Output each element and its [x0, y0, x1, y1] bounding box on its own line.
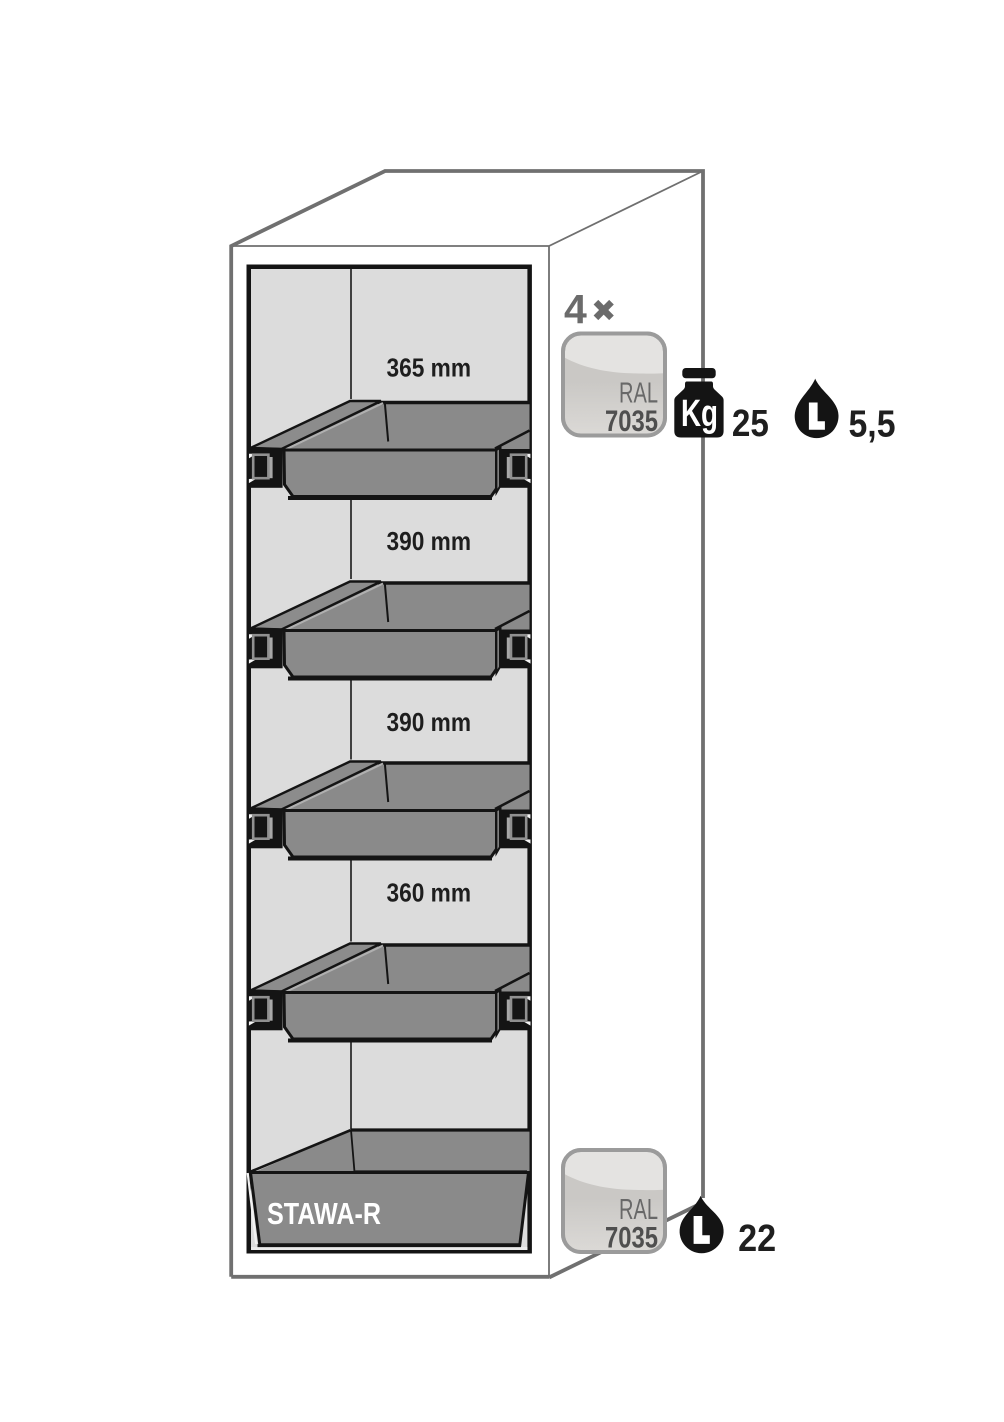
svg-text:365 mm: 365 mm: [387, 353, 472, 383]
svg-text:25: 25: [732, 403, 769, 445]
svg-text:5,5: 5,5: [849, 404, 896, 446]
svg-text:390 mm: 390 mm: [387, 526, 472, 556]
svg-text:Kg: Kg: [681, 393, 718, 435]
svg-text:22: 22: [738, 1218, 776, 1260]
svg-text:360 mm: 360 mm: [387, 878, 472, 908]
svg-text:STAWA-R: STAWA-R: [267, 1196, 381, 1231]
svg-text:4: 4: [564, 286, 587, 332]
svg-text:390 mm: 390 mm: [387, 707, 472, 737]
